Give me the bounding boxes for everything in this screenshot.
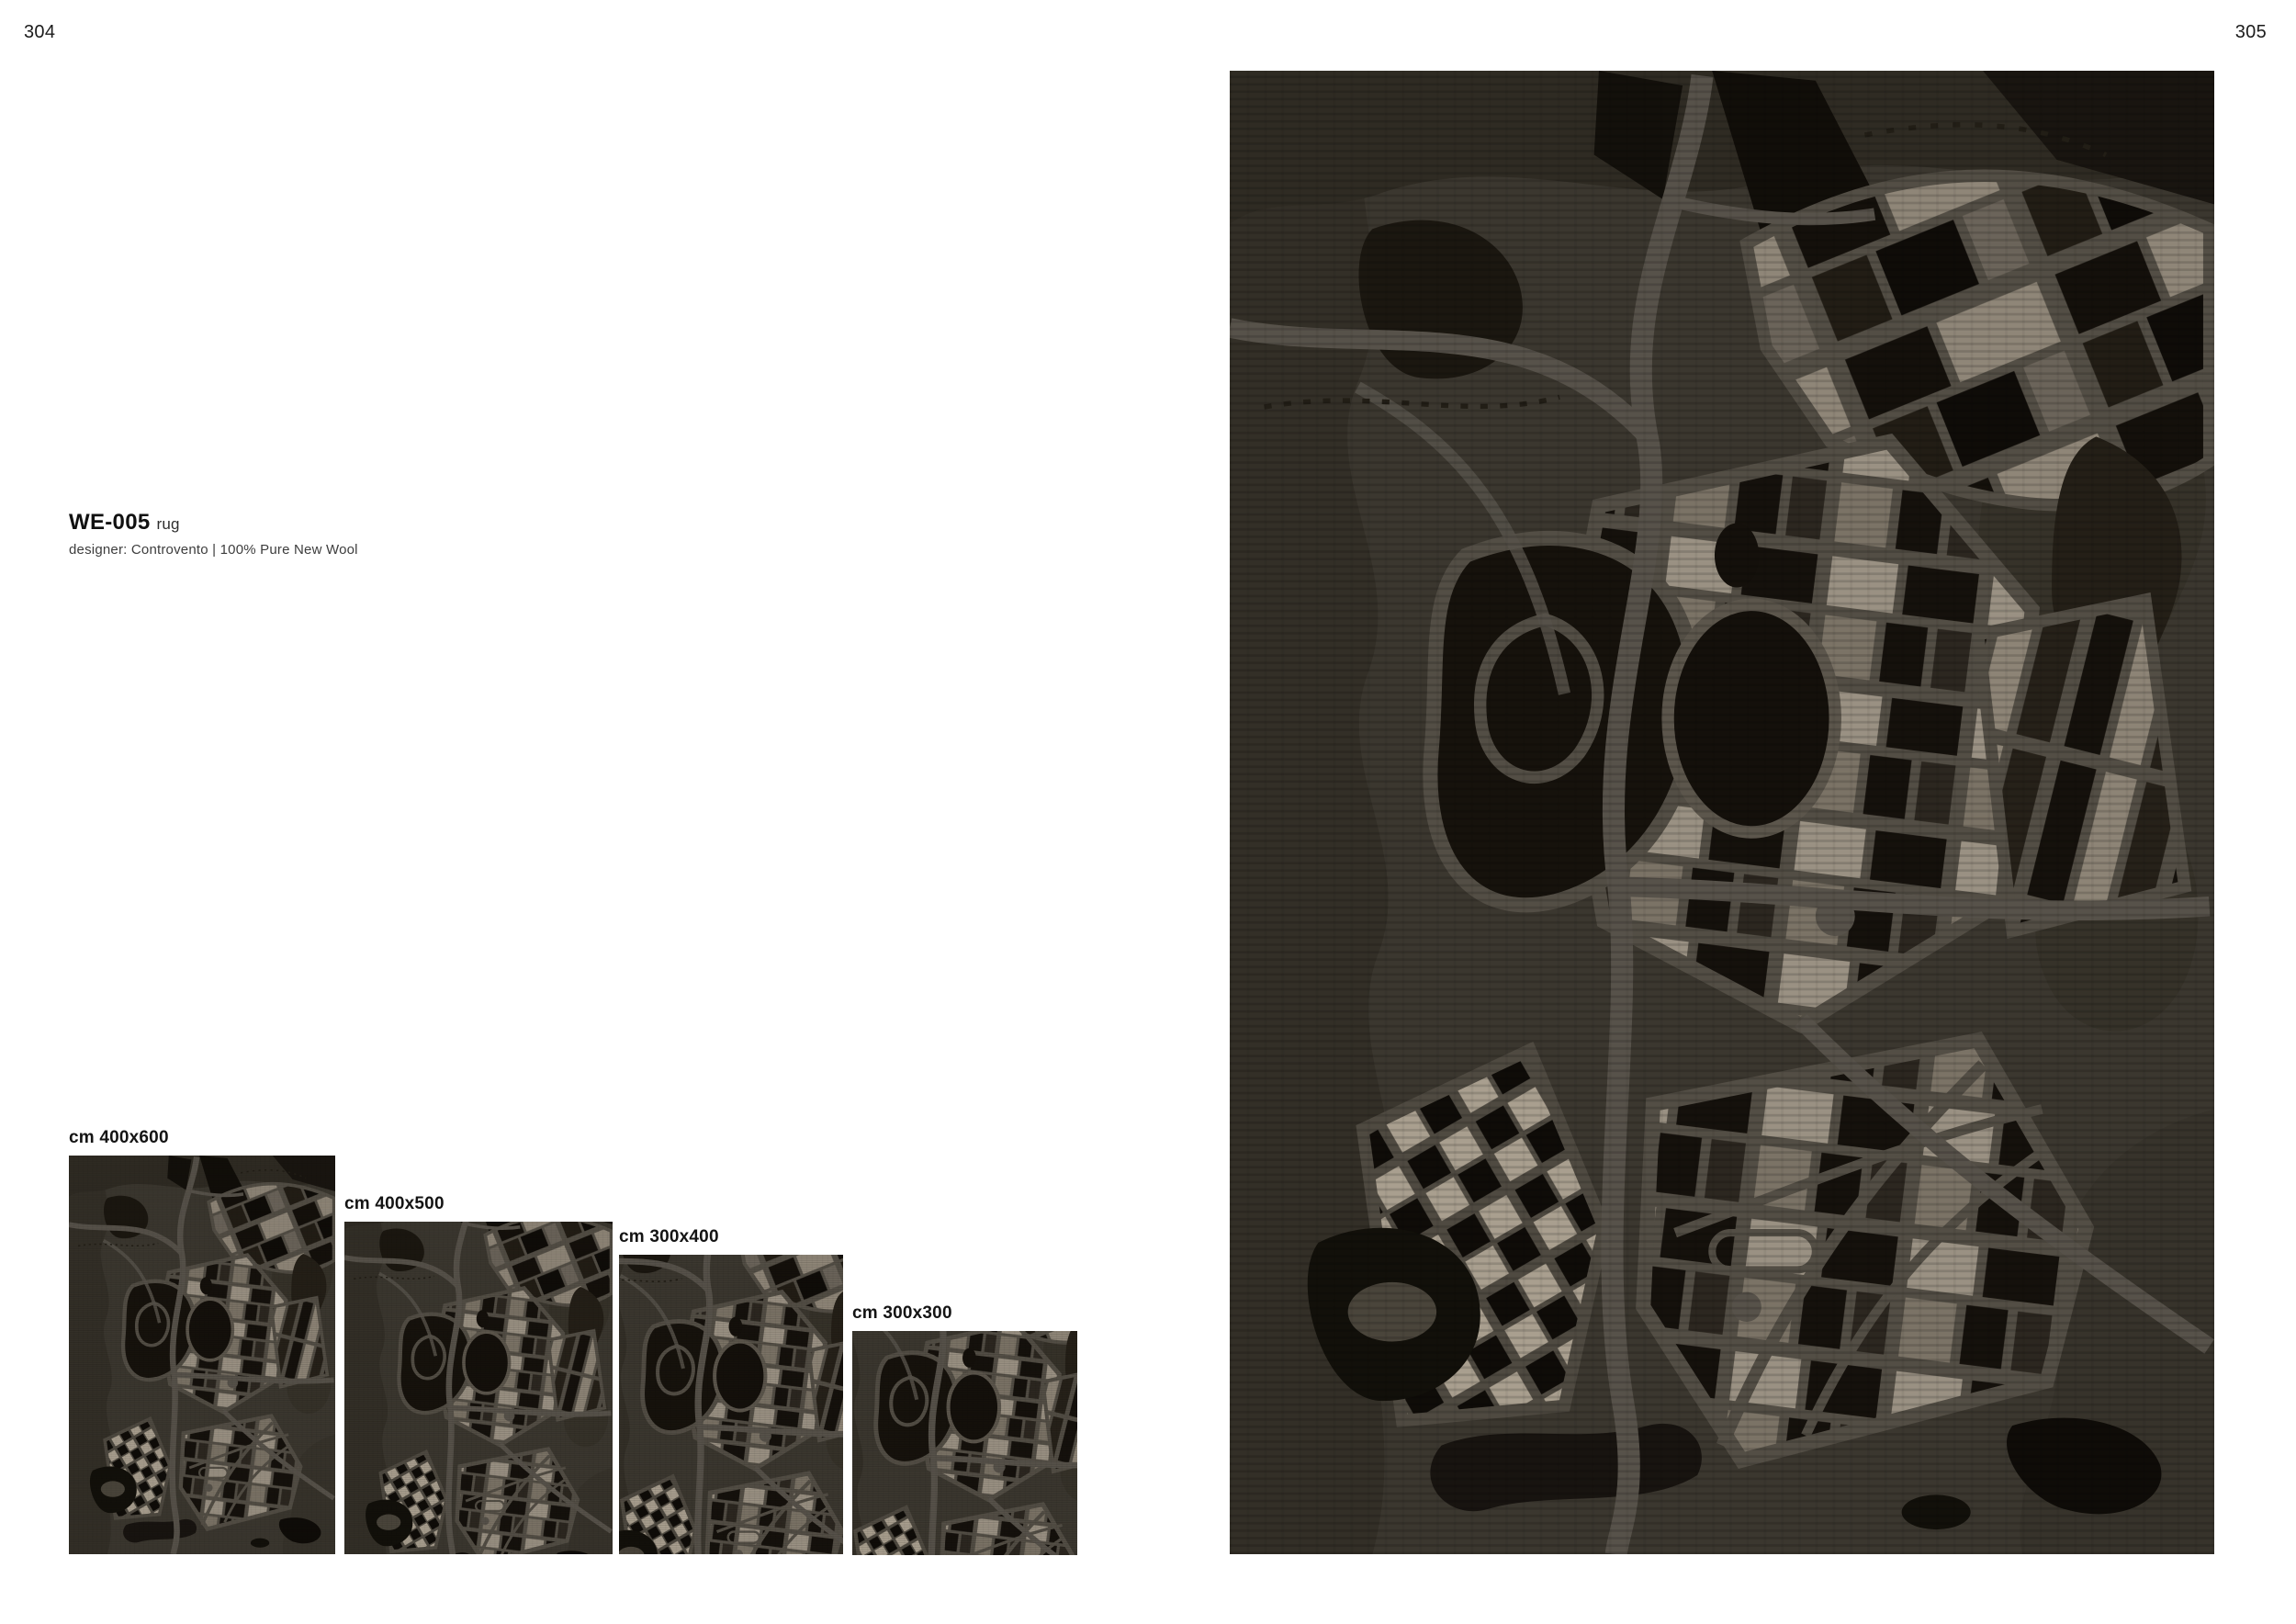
size-variant-400x500: cm 400x500	[344, 1222, 613, 1554]
product-title: WE-005rug	[69, 511, 712, 536]
product-type: rug	[157, 515, 180, 533]
product-info: WE-005rug designer: Controvento | 100% P…	[69, 511, 712, 558]
size-label-300x400: cm 300x400	[619, 1227, 719, 1247]
product-details: designer: Controvento | 100% Pure New Wo…	[69, 541, 712, 558]
main-rug-photo	[1230, 71, 2214, 1554]
size-variant-400x600: cm 400x600	[69, 1156, 335, 1554]
size-label-400x600: cm 400x600	[69, 1128, 169, 1148]
size-variant-300x400: cm 300x400	[619, 1255, 843, 1554]
page-number-left: 304	[24, 22, 55, 42]
rug-image-full	[1230, 71, 2214, 1554]
page-number-right: 305	[2235, 22, 2267, 42]
product-code: WE-005	[69, 510, 151, 535]
rug-thumbnail-300x300	[852, 1331, 1077, 1555]
size-label-400x500: cm 400x500	[344, 1194, 445, 1214]
rug-thumbnail-400x600	[69, 1156, 335, 1554]
size-variant-300x300: cm 300x300	[852, 1331, 1077, 1555]
rug-thumbnail-400x500	[344, 1222, 613, 1554]
rug-thumbnail-300x400	[619, 1255, 843, 1554]
catalog-spread: 304 305 WE-005rug designer: Controvento …	[0, 0, 2296, 1624]
size-label-300x300: cm 300x300	[852, 1303, 952, 1324]
